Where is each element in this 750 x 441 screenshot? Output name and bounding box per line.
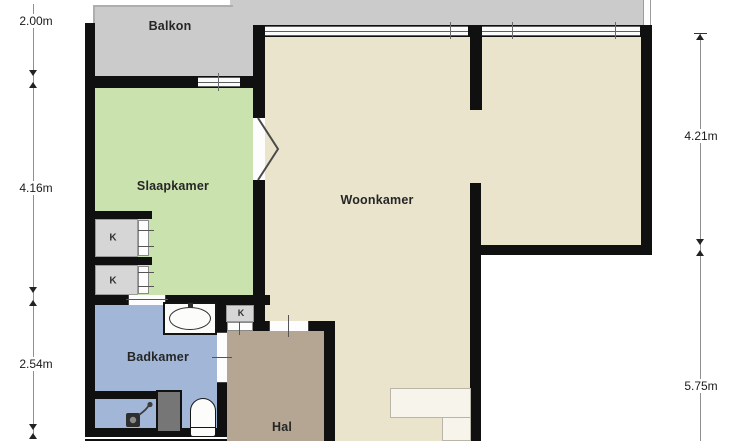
wall-right-section-right	[641, 25, 652, 255]
closet-label: K	[238, 308, 245, 318]
room-woonkamer-area-top	[260, 30, 645, 250]
closet-door	[138, 266, 149, 294]
dimension-arrow	[29, 433, 37, 439]
closet-label: K	[109, 233, 116, 244]
dimension-line-left	[33, 4, 34, 436]
closet-door-tick	[138, 286, 154, 287]
washbasin-tap-icon	[188, 303, 193, 308]
room-label-badkamer: Badkamer	[127, 350, 189, 364]
wall-slaapkamer-woonkamer-lower	[253, 180, 265, 331]
dimension-arrow	[29, 300, 37, 306]
dimension-arrow	[696, 34, 704, 40]
door-slaapkamer-badkamer	[128, 295, 166, 305]
wall-closet-top	[85, 211, 152, 219]
door-threshold	[212, 357, 232, 358]
dimension-label-woonkamer-right: 4.21m	[682, 129, 719, 143]
dimension-arrow	[29, 424, 37, 430]
wall-hal-right	[324, 321, 335, 441]
kitchen-unit-right	[442, 417, 471, 441]
window-woonkamer-right	[482, 26, 640, 36]
dimension-label-balkon: 2.00m	[17, 14, 54, 28]
dimension-label-badkamer: 2.54m	[17, 357, 54, 371]
window-mullion	[512, 22, 513, 39]
wall-closet-mid	[85, 257, 152, 265]
closet-door-tick	[138, 230, 154, 231]
balcony-railing-left	[93, 5, 95, 25]
door-swing-icon	[255, 114, 283, 184]
kitchen-unit-top	[390, 388, 471, 418]
dimension-arrow	[696, 250, 704, 256]
door-threshold	[288, 315, 289, 337]
window-mullion	[450, 22, 451, 39]
door-hal-woonkamer	[269, 321, 309, 331]
door-threshold	[126, 299, 168, 300]
window-woonkamer-left	[265, 26, 468, 36]
room-label-balkon: Balkon	[149, 19, 192, 33]
wall-right-section-bottom	[478, 245, 652, 255]
window-mullion	[218, 73, 219, 91]
washbasin-bowl-icon	[169, 307, 211, 330]
wall-woonkamer-stub-top	[470, 25, 482, 110]
balcony-railing-right	[643, 0, 651, 28]
room-label-hal: Hal	[272, 420, 292, 434]
window-slaapkamer-balkon	[198, 77, 240, 87]
room-woonkamer-area-mid	[260, 250, 476, 325]
balcony-railing-top	[93, 5, 233, 7]
wall-shower-enclosure	[85, 391, 156, 399]
toilet	[190, 398, 216, 437]
floor-plan: K K K Balkon Slaapkamer Woonkamer Badkam…	[0, 0, 750, 441]
closet-door-tick	[138, 272, 154, 273]
dimension-arrow	[29, 287, 37, 293]
dimension-label-slaapkamer: 4.16m	[17, 181, 54, 195]
room-label-slaapkamer: Slaapkamer	[137, 179, 209, 193]
closet-door-tick	[239, 322, 240, 335]
dimension-arrow	[29, 82, 37, 88]
shower-fixture-icon	[120, 401, 160, 433]
dimension-arrow	[29, 70, 37, 76]
dimension-label-lower-right: 5.75m	[682, 379, 719, 393]
dimension-arrow	[696, 239, 704, 245]
room-label-woonkamer: Woonkamer	[340, 193, 413, 207]
closet-door	[138, 220, 149, 256]
wall-right-exterior	[470, 183, 481, 441]
window-mullion	[615, 22, 616, 39]
closet-label: K	[109, 276, 116, 287]
closet-door	[227, 322, 253, 331]
closet-door-tick	[138, 246, 154, 247]
wall-slaapkamer-woonkamer-upper	[253, 25, 265, 118]
washbasin	[163, 302, 217, 335]
